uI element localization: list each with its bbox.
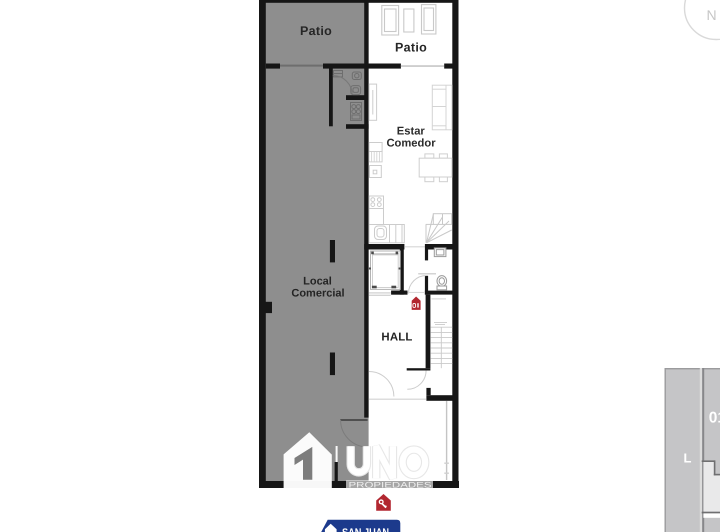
svg-text:01: 01 [709, 409, 720, 426]
svg-text:Local: Local [303, 276, 332, 288]
svg-text:Patio: Patio [300, 24, 332, 38]
svg-text:Comedor: Comedor [386, 138, 436, 150]
svg-text:Comercial: Comercial [291, 288, 344, 300]
svg-text:PROPIEDADES: PROPIEDADES [349, 480, 432, 489]
svg-text:Estar: Estar [397, 126, 426, 138]
svg-text:Patio: Patio [395, 41, 427, 55]
svg-text:HALL: HALL [381, 332, 412, 344]
svg-text:L: L [684, 451, 692, 466]
svg-text:N: N [706, 7, 716, 23]
svg-text:SAN JUAN: SAN JUAN [342, 527, 389, 532]
